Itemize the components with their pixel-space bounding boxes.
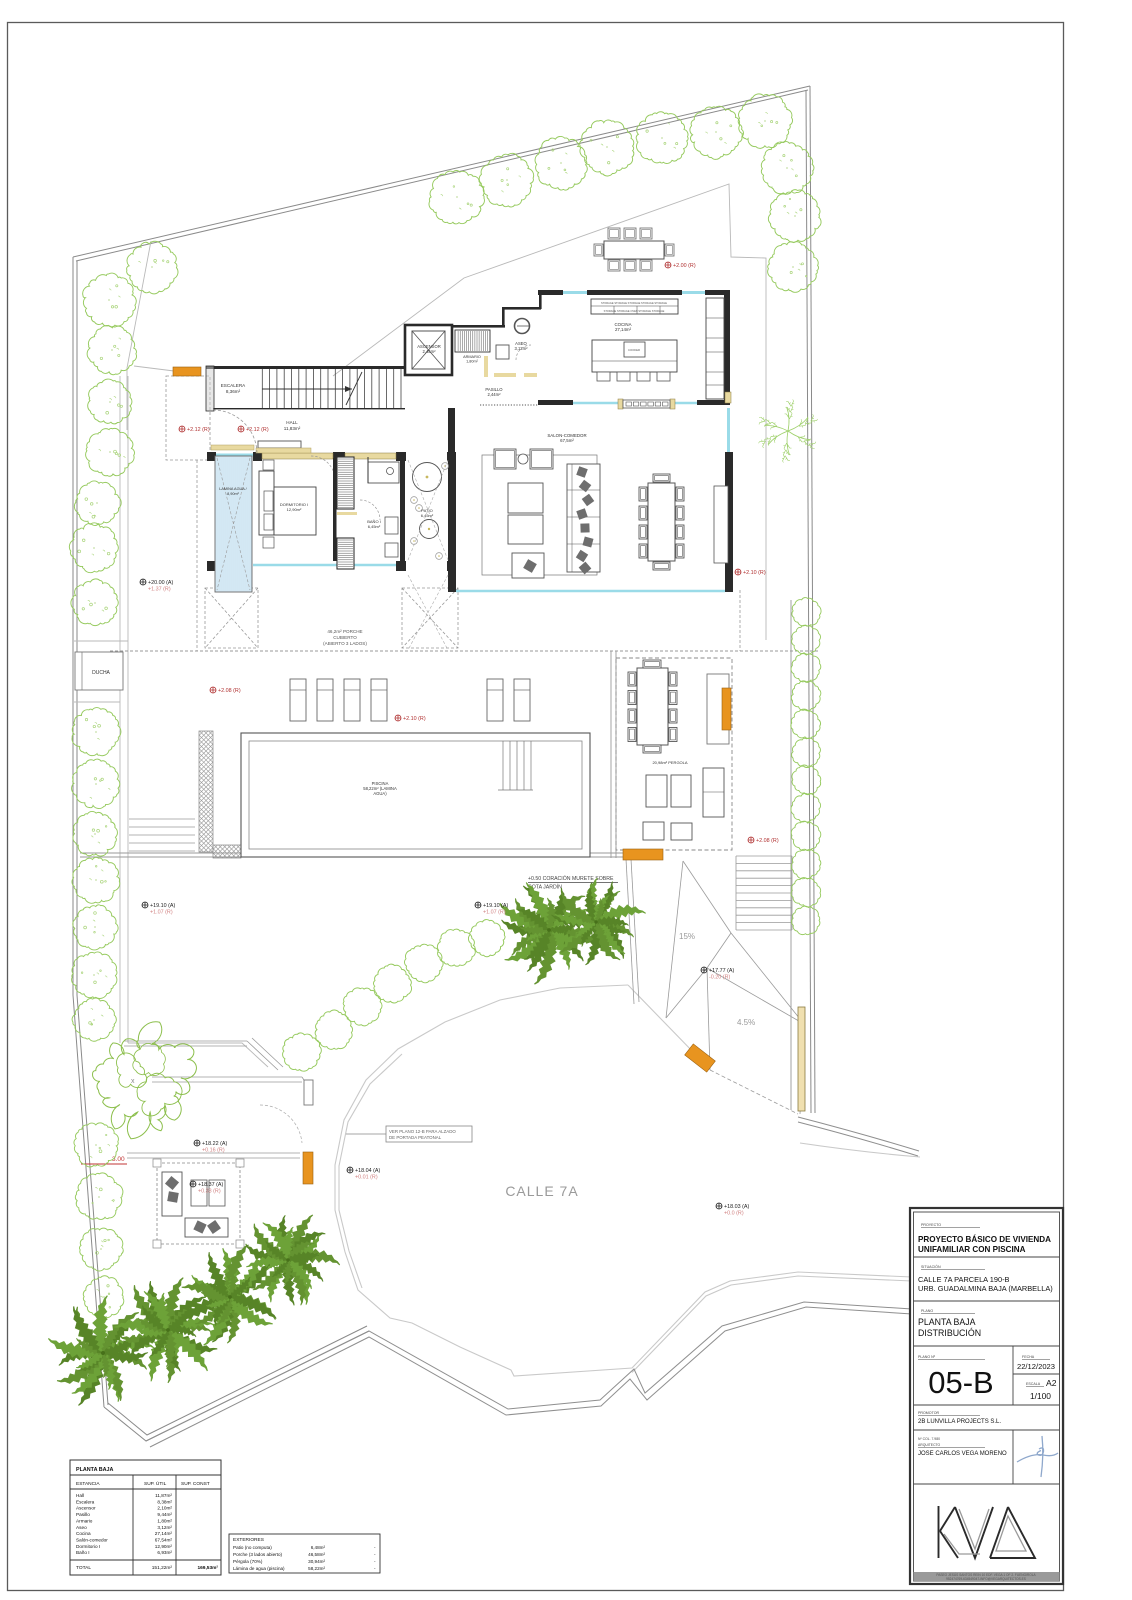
svg-text:(ABIERTO 3 LADOS): (ABIERTO 3 LADOS) [323, 641, 367, 646]
svg-text:LAMINA AGUA /: LAMINA AGUA / [219, 487, 247, 491]
svg-text:Ascensor: Ascensor [76, 1506, 96, 1511]
svg-text:58,22m²: 58,22m² [308, 1566, 325, 1571]
svg-text:2,45m²: 2,45m² [422, 349, 436, 354]
svg-text:+1.37 (R): +1.37 (R) [148, 587, 171, 593]
svg-text:+2.10 (R): +2.10 (R) [403, 716, 426, 722]
svg-text:12,90m²: 12,90m² [287, 507, 302, 512]
svg-text:1,80m²: 1,80m² [157, 1518, 172, 1523]
svg-text:CALLE 7A PARCELA 190-B: CALLE 7A PARCELA 190-B [918, 1275, 1010, 1284]
svg-text:Patio (no computa): Patio (no computa) [233, 1545, 272, 1550]
svg-text:46,2m² PORCHE: 46,2m² PORCHE [327, 629, 362, 634]
svg-text:PLANTA BAJA: PLANTA BAJA [918, 1317, 976, 1327]
svg-text:9,44m²: 9,44m² [157, 1512, 172, 1517]
svg-text:27,14m²: 27,14m² [155, 1531, 173, 1536]
svg-text:PLANO Nº: PLANO Nº [918, 1355, 936, 1359]
svg-text:CUBIERTO: CUBIERTO [333, 635, 357, 640]
svg-text:20,98m² PERGOLA: 20,98m² PERGOLA [652, 760, 687, 765]
svg-text:VER PLANO 12-B PARA ALZADO: VER PLANO 12-B PARA ALZADO [389, 1129, 456, 1134]
svg-text:67,54m²: 67,54m² [155, 1538, 173, 1543]
svg-text:169,53m²: 169,53m² [197, 1565, 218, 1571]
svg-text:x: x [131, 1078, 135, 1085]
svg-text:STORAGE STORAGE STORAGE S: STORAGE STORAGE STORAGE STORAGE STORAGE [601, 301, 667, 305]
svg-text:8,90m²: 8,90m² [227, 492, 240, 496]
svg-text:30,94m²: 30,94m² [308, 1559, 325, 1564]
svg-text:HALL: HALL [286, 420, 298, 425]
svg-text:SITUACIÓN: SITUACIÓN [921, 1264, 941, 1269]
svg-text:3.00: 3.00 [112, 1156, 125, 1163]
svg-text:+20.00 (A): +20.00 (A) [148, 580, 174, 586]
svg-text:+18.03 (A): +18.03 (A) [724, 1204, 750, 1210]
svg-text:+2.12 (R): +2.12 (R) [187, 427, 210, 433]
svg-text:Armario: Armario [76, 1518, 93, 1523]
svg-text:+17.77 (A): +17.77 (A) [709, 968, 735, 974]
svg-text:DISTRIBUCIÓN: DISTRIBUCIÓN [918, 1328, 981, 1338]
svg-text:STORAGE STORAGE OVEN: STORAGE STORAGE OVEN STORAGE STORAGE [604, 309, 665, 313]
svg-text:151,22m²: 151,22m² [152, 1565, 173, 1571]
svg-text:TOTAL: TOTAL [76, 1565, 91, 1571]
svg-text:Aseo: Aseo [76, 1525, 87, 1530]
svg-text:+18.37 (A): +18.37 (A) [198, 1182, 224, 1188]
svg-text:3,12m²: 3,12m² [157, 1525, 172, 1530]
svg-text:URB. GUADALMINA BAJA (MARBELLA: URB. GUADALMINA BAJA (MARBELLA) [918, 1284, 1053, 1293]
svg-text:Porche (3 lados abierto): Porche (3 lados abierto) [233, 1552, 282, 1557]
svg-text:Nº COL. 7.980: Nº COL. 7.980 [918, 1437, 940, 1441]
svg-text:+1.07 (R): +1.07 (R) [483, 910, 506, 916]
svg-text:FECHA: FECHA [1022, 1355, 1035, 1359]
svg-text:15%: 15% [679, 932, 695, 941]
svg-text:6,93m²: 6,93m² [157, 1550, 172, 1555]
svg-text:05-B: 05-B [928, 1365, 993, 1400]
svg-text:UNIFAMILIAR CON PISCINA: UNIFAMILIAR CON PISCINA [918, 1245, 1026, 1254]
svg-text:+19.10 (A): +19.10 (A) [150, 903, 176, 909]
svg-text:11,83m²: 11,83m² [284, 426, 301, 431]
svg-text:+0.0 (R): +0.0 (R) [724, 1211, 744, 1217]
svg-text:6,48m²: 6,48m² [311, 1545, 326, 1550]
svg-text:SUP. ÚTIL: SUP. ÚTIL [144, 1480, 167, 1487]
svg-text:4.5%: 4.5% [737, 1018, 755, 1027]
svg-text:11,87m²: 11,87m² [155, 1493, 172, 1498]
svg-text:Baño I: Baño I [76, 1550, 90, 1555]
svg-text:Salón-comedor: Salón-comedor [76, 1538, 108, 1543]
svg-text:+1.07 (R): +1.07 (R) [150, 910, 173, 916]
svg-text:ESCALA: ESCALA [1026, 1382, 1041, 1386]
svg-text:+0.33 (R): +0.33 (R) [198, 1189, 221, 1195]
svg-text:+2.08 (R): +2.08 (R) [756, 838, 779, 844]
svg-text:+2.12 (R): +2.12 (R) [246, 427, 269, 433]
svg-text:8,36m²: 8,36m² [226, 389, 241, 394]
svg-text:ARMARIO: ARMARIO [463, 355, 481, 359]
svg-text:ESCALERA: ESCALERA [221, 383, 246, 388]
svg-text:PROYECTO BÁSICO DE VIVIENDA: PROYECTO BÁSICO DE VIVIENDA [918, 1235, 1051, 1244]
svg-text:A2: A2 [1046, 1378, 1057, 1388]
svg-text:DE PORTADA PEATONAL: DE PORTADA PEATONAL [389, 1135, 442, 1140]
svg-text:DUCHA: DUCHA [92, 670, 110, 676]
svg-text:Pérgola (70%): Pérgola (70%) [233, 1559, 263, 1564]
svg-text:PROYECTO: PROYECTO [921, 1223, 941, 1227]
svg-text:Hall: Hall [76, 1493, 84, 1498]
svg-text:PROMOTOR: PROMOTOR [918, 1411, 940, 1415]
svg-text:Escalera: Escalera [76, 1499, 95, 1504]
svg-text:+18.04 (A): +18.04 (A) [355, 1168, 381, 1174]
svg-text:Pasillo: Pasillo [76, 1512, 90, 1517]
svg-text:12,90m²: 12,90m² [155, 1544, 173, 1549]
svg-text:27,14m²: 27,14m² [615, 327, 632, 332]
svg-text:+2.00 (R): +2.00 (R) [673, 263, 696, 269]
svg-text:6,45m²: 6,45m² [421, 513, 434, 518]
svg-text:COOKER: COOKER [628, 348, 640, 352]
svg-text:2,44m²: 2,44m² [487, 392, 501, 397]
svg-text:PLANO: PLANO [921, 1309, 933, 1313]
svg-text:-0.20 (R): -0.20 (R) [709, 975, 730, 981]
svg-text:JOSE CARLOS VEGA MORENO: JOSE CARLOS VEGA MORENO [918, 1451, 1007, 1457]
svg-text:ARQUITECTO: ARQUITECTO [918, 1443, 941, 1447]
svg-text:Cocina: Cocina [76, 1531, 91, 1536]
svg-text:67,5m²: 67,5m² [560, 438, 574, 443]
svg-text:2B LUNVILLA PROJECTS S.L.: 2B LUNVILLA PROJECTS S.L. [918, 1419, 1001, 1425]
svg-text:CALLE 7A: CALLE 7A [505, 1183, 578, 1199]
svg-text:+2.08 (R): +2.08 (R) [218, 688, 241, 694]
svg-text:EXTERIORES: EXTERIORES [233, 1537, 264, 1543]
svg-text:+19.10 (A): +19.10 (A) [483, 903, 509, 909]
svg-text:46,58m²: 46,58m² [308, 1552, 325, 1557]
svg-text:+0.50 CORACIÓN MURETE SOBRE: +0.50 CORACIÓN MURETE SOBRE [528, 875, 614, 882]
svg-text:1,80m²: 1,80m² [466, 360, 479, 364]
svg-text:PLANTA BAJA: PLANTA BAJA [76, 1467, 114, 1473]
svg-text:2,10m²: 2,10m² [157, 1506, 172, 1511]
svg-text:952474769-634549047-INFO@VEGAR: 952474769-634549047-INFO@VEGARQUITECTOS.… [946, 1577, 1026, 1581]
svg-text:ESTANCIA: ESTANCIA [76, 1481, 100, 1487]
svg-text:+18.22 (A): +18.22 (A) [202, 1141, 228, 1147]
svg-text:+2.10 (R): +2.10 (R) [743, 570, 766, 576]
svg-text:Lámina de agua (piscina): Lámina de agua (piscina) [233, 1566, 285, 1571]
svg-text:22/12/2023: 22/12/2023 [1017, 1362, 1055, 1371]
svg-text:+0.16 (R): +0.16 (R) [202, 1148, 225, 1154]
svg-text:6,45m²: 6,45m² [368, 524, 381, 529]
svg-text:SUP. CONST: SUP. CONST [181, 1481, 210, 1487]
svg-text:AGUA): AGUA) [373, 791, 387, 796]
svg-text:+0.01 (R): +0.01 (R) [355, 1175, 378, 1181]
svg-text:1/100: 1/100 [1030, 1391, 1051, 1401]
svg-text:8,38m²: 8,38m² [157, 1499, 172, 1504]
svg-text:Dormitorio I: Dormitorio I [76, 1544, 100, 1549]
